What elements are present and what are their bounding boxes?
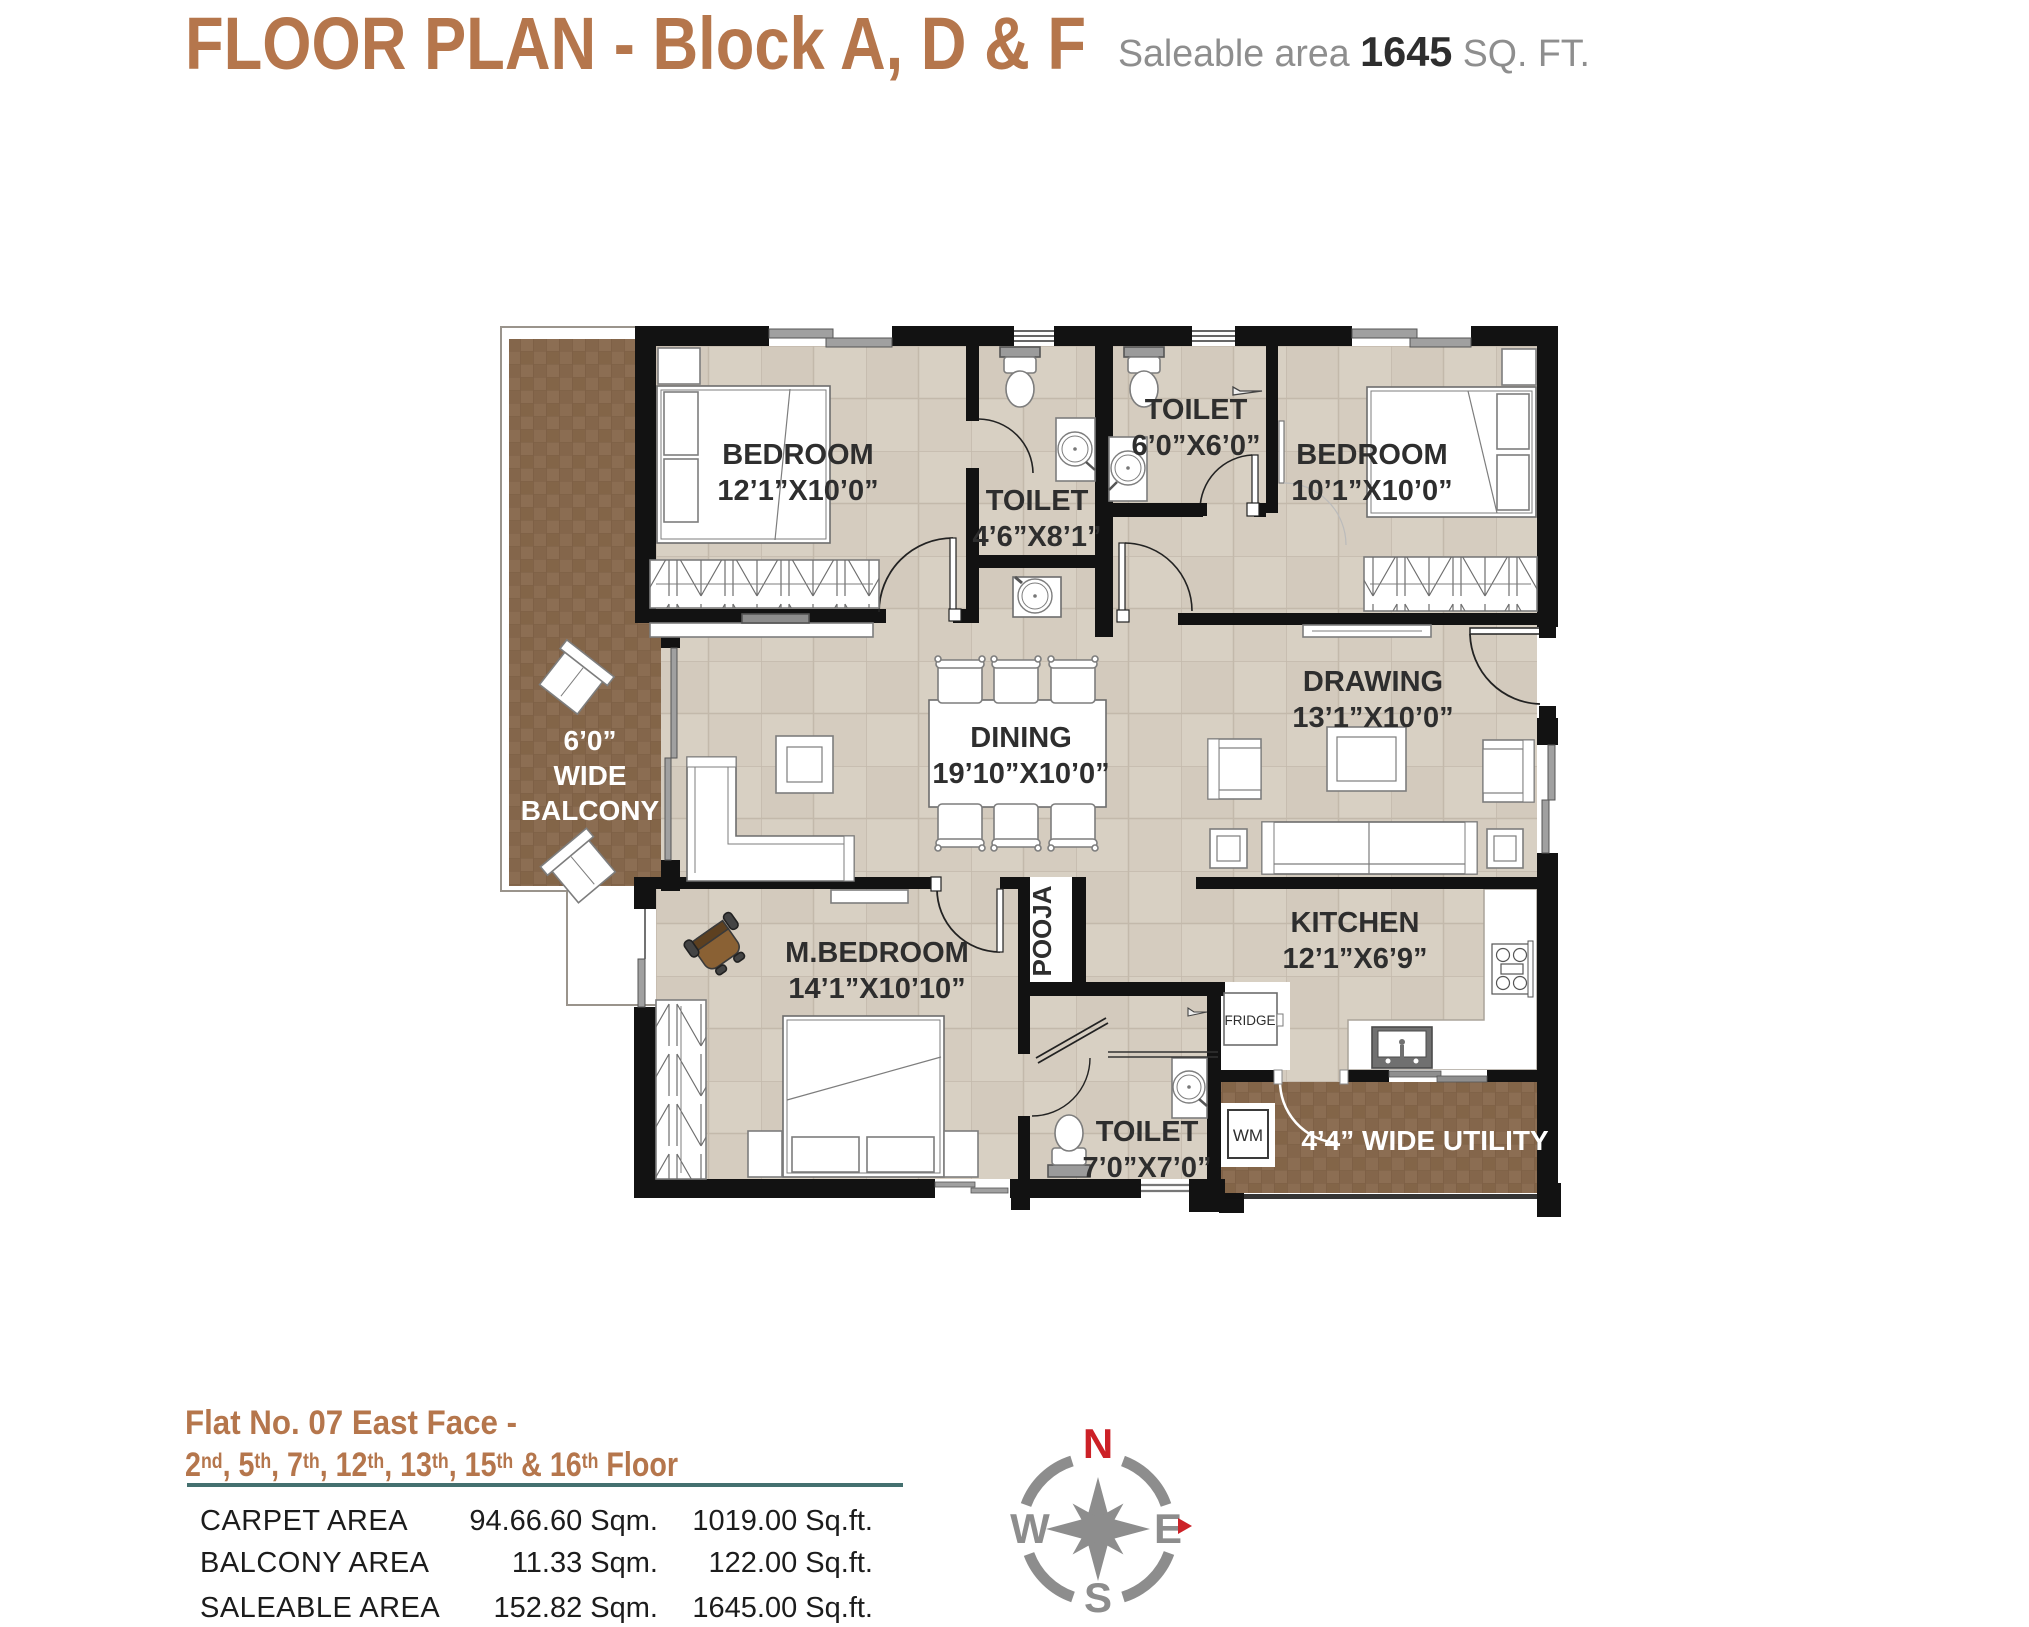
- svg-text:CARPET AREA: CARPET AREA: [200, 1505, 408, 1537]
- svg-text:TOILET: TOILET: [1096, 1116, 1199, 1148]
- svg-text:BALCONY AREA: BALCONY AREA: [200, 1547, 430, 1579]
- svg-text:BEDROOM: BEDROOM: [1296, 439, 1447, 471]
- svg-text:SALEABLE AREA: SALEABLE AREA: [200, 1592, 440, 1624]
- svg-text:KITCHEN: KITCHEN: [1291, 907, 1420, 939]
- svg-text:WM: WM: [1233, 1126, 1263, 1145]
- svg-text:152.82 Sqm.: 152.82 Sqm.: [494, 1592, 658, 1624]
- svg-text:7’0”X7’0”: 7’0”X7’0”: [1083, 1152, 1212, 1184]
- svg-text:POOJA: POOJA: [1027, 885, 1057, 976]
- svg-text:19’10”X10’0”: 19’10”X10’0”: [932, 758, 1109, 790]
- svg-text:6’0”: 6’0”: [564, 725, 617, 756]
- svg-text:6’0”X6’0”: 6’0”X6’0”: [1132, 430, 1261, 462]
- svg-text:WIDE: WIDE: [553, 760, 626, 791]
- svg-text:S: S: [1084, 1574, 1112, 1621]
- svg-text:E: E: [1154, 1505, 1182, 1552]
- svg-text:13’1”X10’0”: 13’1”X10’0”: [1292, 702, 1453, 734]
- svg-text:12’1”X10’0”: 12’1”X10’0”: [717, 475, 878, 507]
- svg-text:N: N: [1083, 1420, 1113, 1467]
- svg-text:TOILET: TOILET: [986, 485, 1089, 517]
- svg-text:BALCONY: BALCONY: [521, 795, 660, 826]
- svg-text:BEDROOM: BEDROOM: [722, 439, 873, 471]
- svg-text:Saleable area 1645 SQ. FT.: Saleable area 1645 SQ. FT.: [1118, 28, 1590, 75]
- svg-text:1645.00 Sq.ft.: 1645.00 Sq.ft.: [692, 1592, 873, 1624]
- svg-text:DRAWING: DRAWING: [1303, 666, 1443, 698]
- svg-text:M.BEDROOM: M.BEDROOM: [785, 937, 969, 969]
- svg-text:14’1”X10’10”: 14’1”X10’10”: [788, 973, 965, 1005]
- svg-text:11.33 Sqm.: 11.33 Sqm.: [512, 1547, 658, 1579]
- svg-text:DINING: DINING: [970, 722, 1072, 754]
- svg-text:FRIDGE: FRIDGE: [1224, 1013, 1275, 1028]
- svg-text:TOILET: TOILET: [1145, 394, 1248, 426]
- svg-text:4’6”X8’1”: 4’6”X8’1”: [973, 521, 1102, 553]
- svg-text:122.00 Sq.ft.: 122.00 Sq.ft.: [709, 1547, 873, 1579]
- svg-text:1019.00 Sq.ft.: 1019.00 Sq.ft.: [692, 1505, 873, 1537]
- svg-text:Flat No. 07 East Face -: Flat No. 07 East Face -: [185, 1404, 517, 1442]
- svg-text:12’1”X6’9”: 12’1”X6’9”: [1282, 943, 1427, 975]
- svg-text:FLOOR PLAN - Block A, D & F: FLOOR PLAN - Block A, D & F: [185, 2, 1086, 85]
- svg-text:W: W: [1010, 1505, 1050, 1552]
- svg-text:4’4” WIDE UTILITY: 4’4” WIDE UTILITY: [1301, 1125, 1549, 1156]
- svg-text:10’1”X10’0”: 10’1”X10’0”: [1291, 475, 1452, 507]
- svg-text:94.66.60 Sqm.: 94.66.60 Sqm.: [469, 1505, 658, 1537]
